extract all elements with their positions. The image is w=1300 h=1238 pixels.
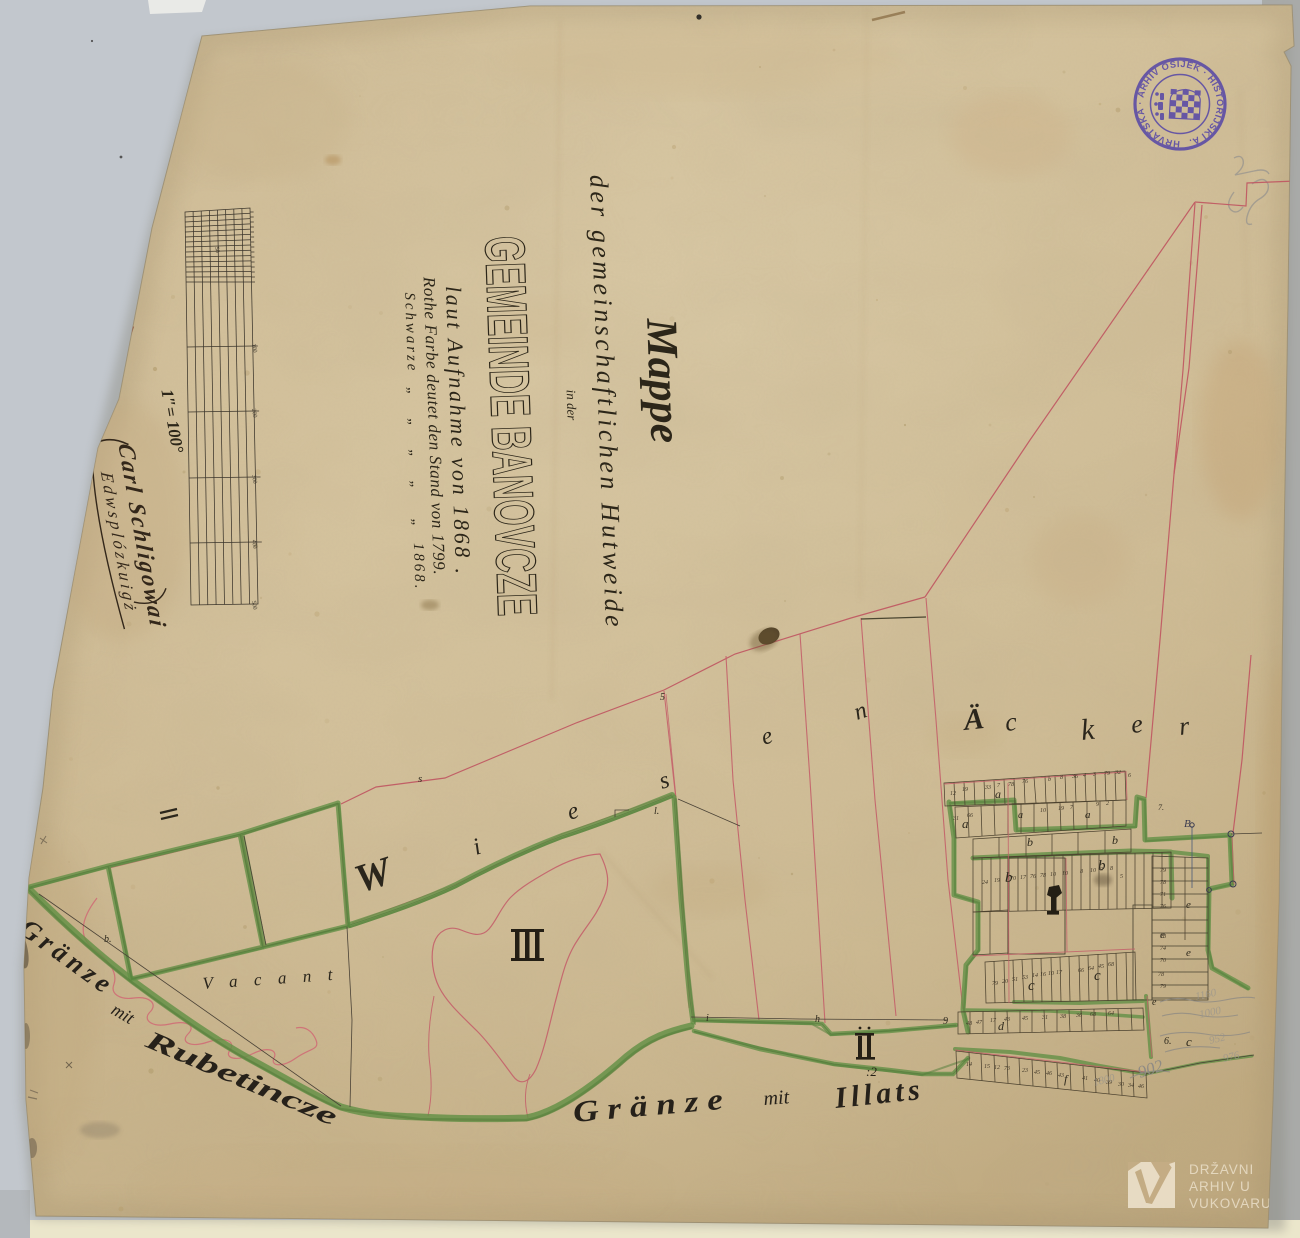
- svg-text:47: 47: [976, 1019, 983, 1026]
- svg-text:b: b: [1005, 870, 1013, 886]
- svg-text:9: 9: [943, 1016, 948, 1027]
- svg-text:mit: mit: [763, 1086, 790, 1110]
- svg-text:5: 5: [660, 692, 665, 703]
- svg-text:31: 31: [952, 816, 959, 822]
- svg-text:79: 79: [1104, 771, 1110, 777]
- svg-text:10: 10: [1048, 971, 1054, 977]
- svg-text:78: 78: [1160, 880, 1166, 886]
- svg-text:12: 12: [950, 791, 956, 797]
- svg-text:e: e: [1186, 947, 1191, 959]
- svg-text:68: 68: [1108, 962, 1114, 968]
- svg-text:d: d: [998, 1019, 1005, 1033]
- svg-text:8: 8: [1110, 866, 1113, 872]
- svg-text:9: 9: [1096, 802, 1099, 808]
- svg-text:51: 51: [1012, 977, 1018, 983]
- svg-text:GEMEINDE BANOVCZE: GEMEINDE BANOVCZE: [473, 235, 549, 617]
- svg-text:20: 20: [1002, 979, 1008, 985]
- svg-text:74: 74: [1160, 945, 1166, 952]
- svg-text:64: 64: [1108, 1010, 1114, 1017]
- svg-text:b: b: [1112, 833, 1118, 847]
- svg-text:79: 79: [992, 981, 998, 987]
- svg-text:24: 24: [982, 879, 988, 886]
- svg-text:b: b: [1027, 835, 1033, 849]
- svg-text:5: 5: [1120, 874, 1123, 880]
- svg-text:14: 14: [966, 1061, 972, 1068]
- svg-text:71: 71: [1160, 892, 1166, 898]
- svg-text:c: c: [1094, 968, 1101, 984]
- svg-text:15: 15: [984, 1064, 990, 1070]
- svg-text:45: 45: [1022, 1015, 1028, 1022]
- svg-text:36: 36: [1071, 774, 1078, 780]
- svg-text:17: 17: [990, 1018, 997, 1024]
- svg-text:8: 8: [1060, 775, 1063, 781]
- svg-text:79: 79: [1160, 868, 1166, 874]
- svg-text:16: 16: [1040, 972, 1046, 978]
- svg-text:48: 48: [966, 1020, 972, 1027]
- svg-text:76: 76: [1022, 779, 1028, 785]
- svg-text:17: 17: [1020, 875, 1027, 881]
- svg-text:8: 8: [1080, 869, 1083, 875]
- svg-text:l.: l.: [654, 806, 659, 817]
- svg-text:70: 70: [1160, 958, 1166, 964]
- svg-text:10: 10: [1050, 872, 1056, 878]
- svg-text:e: e: [1152, 997, 1157, 1008]
- svg-text:68: 68: [1090, 1012, 1096, 1018]
- svg-text:12: 12: [994, 1065, 1000, 1071]
- svg-text:3: 3: [1092, 772, 1096, 778]
- svg-text:17: 17: [1056, 970, 1063, 976]
- svg-text:VUKOVARU: VUKOVARU: [1189, 1196, 1272, 1211]
- svg-text:e: e: [1160, 929, 1165, 941]
- svg-text:b: b: [1048, 777, 1051, 783]
- svg-text:a: a: [1018, 810, 1023, 821]
- svg-text:66: 66: [1078, 968, 1084, 974]
- svg-text:6.: 6.: [1164, 1036, 1172, 1047]
- svg-text:i: i: [706, 1013, 709, 1024]
- svg-text:19: 19: [994, 878, 1000, 884]
- svg-text:45: 45: [1034, 1069, 1040, 1076]
- svg-text:31: 31: [1041, 1015, 1048, 1021]
- svg-text:76: 76: [1160, 904, 1166, 910]
- svg-text:73: 73: [1004, 1066, 1010, 1072]
- svg-text:23: 23: [1022, 1068, 1028, 1074]
- svg-text:a: a: [962, 816, 969, 831]
- svg-text:78: 78: [1040, 873, 1046, 879]
- svg-text:50: 50: [213, 246, 220, 253]
- svg-text:s: s: [418, 773, 422, 785]
- svg-text:79: 79: [1160, 984, 1166, 990]
- svg-text:2: 2: [1106, 801, 1109, 807]
- svg-text:a: a: [995, 787, 1001, 801]
- svg-text:in der: in der: [564, 389, 580, 421]
- svg-text:a: a: [1085, 809, 1091, 821]
- svg-text:10: 10: [1040, 808, 1046, 814]
- svg-text:46: 46: [1138, 1083, 1144, 1090]
- svg-text:30: 30: [1117, 1082, 1124, 1088]
- svg-text:46: 46: [1046, 1070, 1052, 1077]
- svg-text:32: 32: [1114, 770, 1121, 776]
- svg-text:19: 19: [1058, 806, 1064, 812]
- svg-text:10: 10: [1090, 868, 1096, 874]
- svg-text:7.: 7.: [1158, 803, 1164, 812]
- svg-text:6: 6: [1128, 773, 1131, 779]
- svg-text:4: 4: [1083, 772, 1086, 779]
- svg-text:e: e: [1186, 899, 1191, 911]
- svg-text:38: 38: [1059, 1014, 1066, 1020]
- svg-text:78: 78: [1008, 782, 1014, 788]
- svg-text:36: 36: [1075, 1013, 1082, 1019]
- svg-text:34: 34: [1127, 1082, 1134, 1089]
- svg-text:19: 19: [962, 787, 968, 793]
- svg-text:b: b: [1098, 858, 1106, 874]
- svg-text:76: 76: [1030, 874, 1036, 880]
- svg-text:78: 78: [1158, 972, 1164, 978]
- svg-text:33: 33: [984, 785, 991, 791]
- svg-text:10: 10: [1062, 871, 1068, 877]
- svg-text:Mappe: Mappe: [637, 317, 690, 444]
- svg-text:b.: b.: [104, 934, 112, 945]
- svg-text:h: h: [815, 1014, 820, 1025]
- svg-text:43: 43: [1004, 1016, 1010, 1023]
- svg-text:41: 41: [1082, 1075, 1088, 1082]
- svg-text:c: c: [1028, 978, 1035, 994]
- svg-text:ARHIV U: ARHIV U: [1189, 1179, 1251, 1194]
- svg-text:DRŽAVNI: DRŽAVNI: [1189, 1162, 1254, 1177]
